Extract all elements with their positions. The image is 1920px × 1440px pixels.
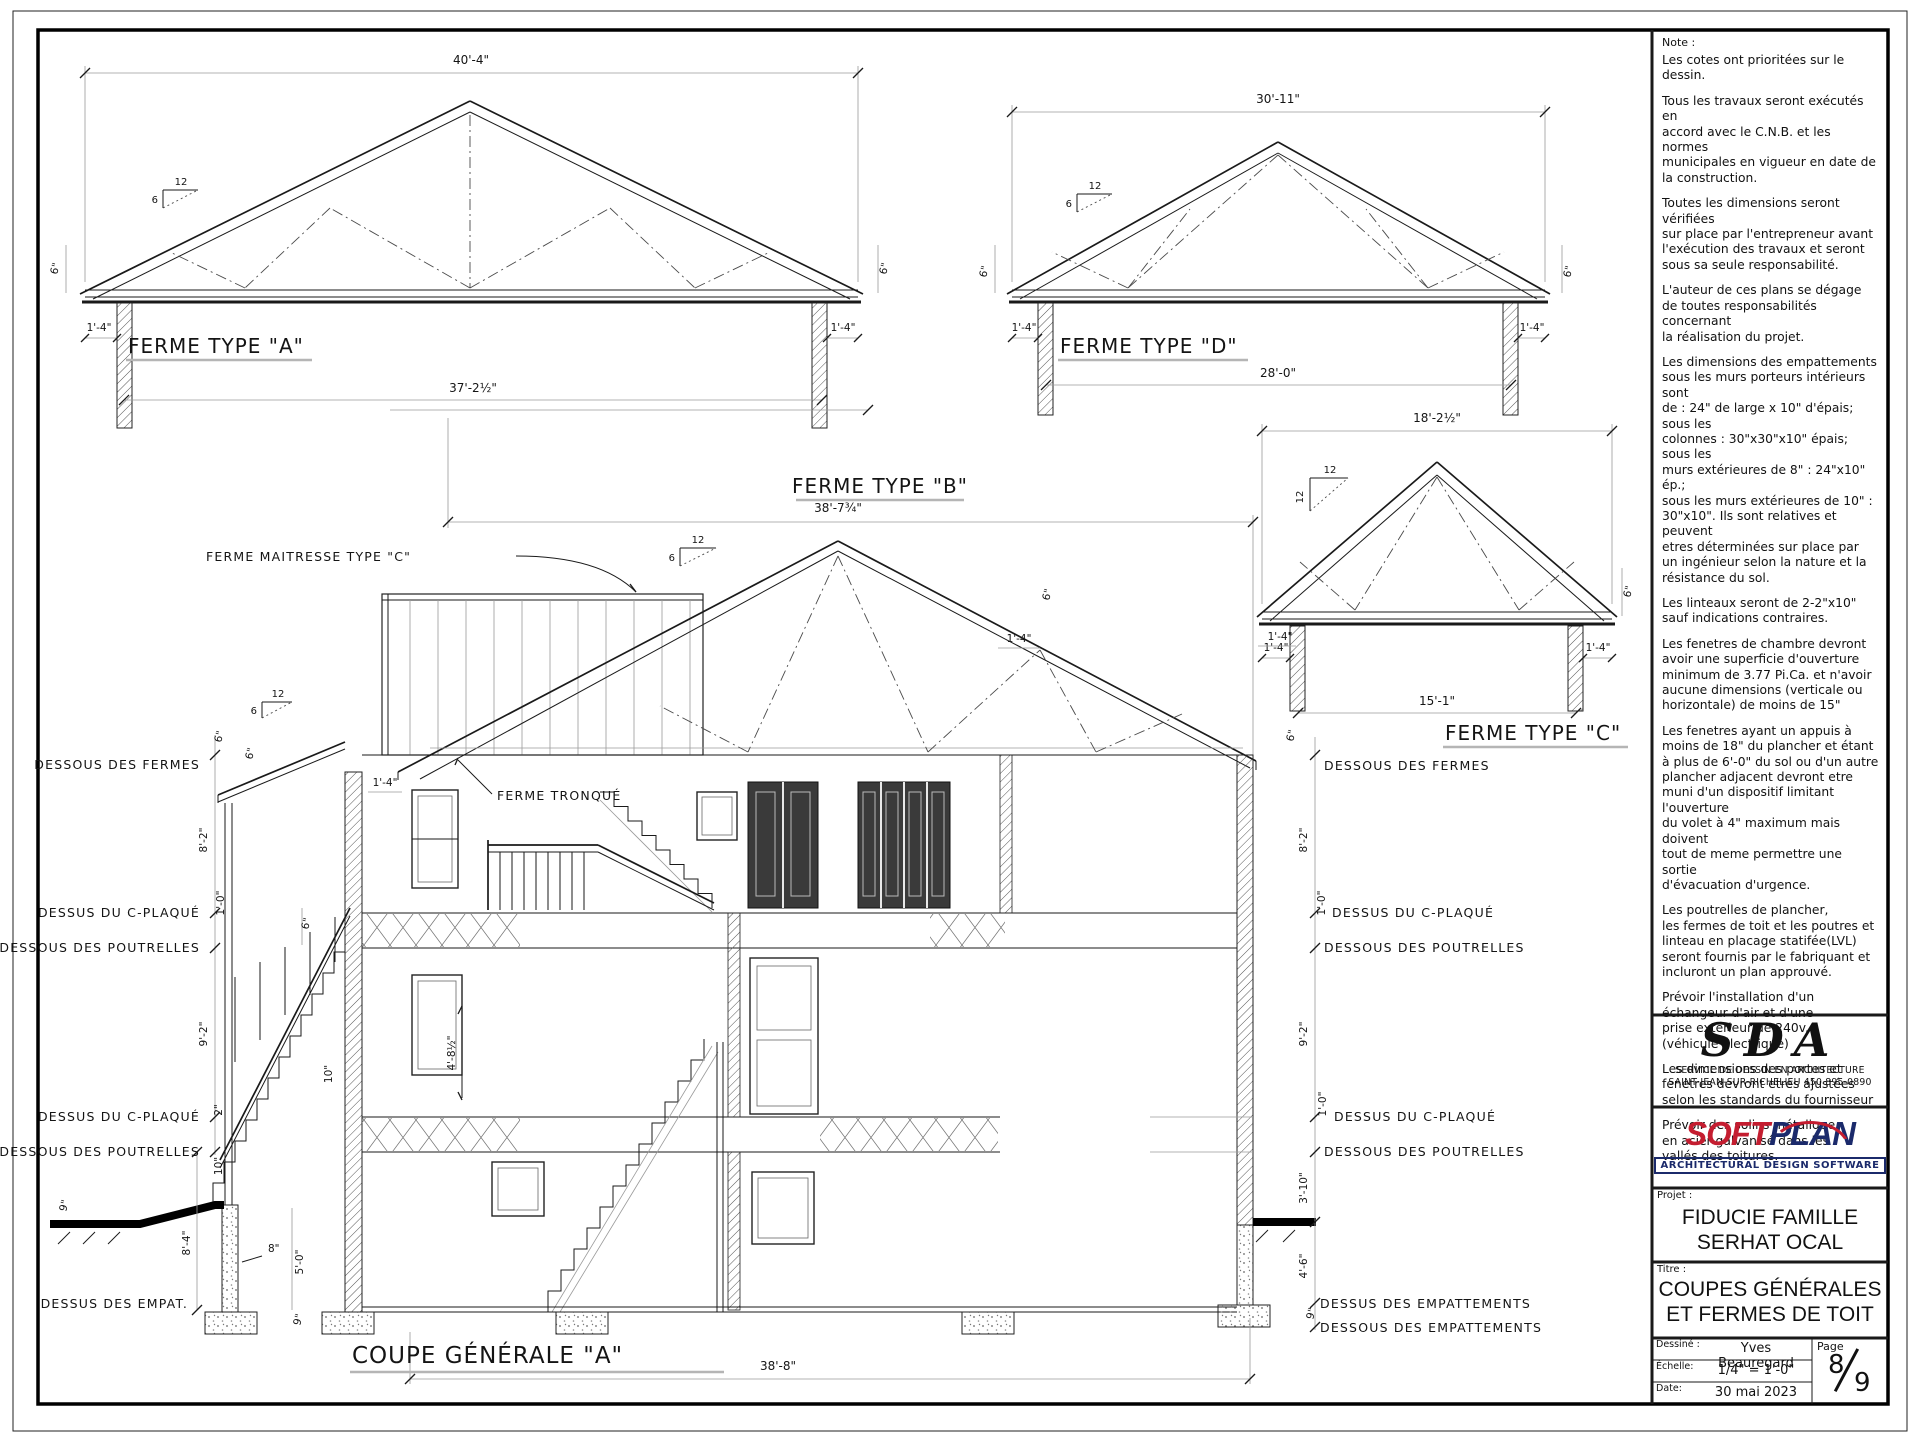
dim-porch-wall: 8" [268, 1243, 280, 1255]
project-line1: FIDUCIE FAMILLE [1652, 1205, 1888, 1230]
porch: 12 6 [213, 689, 350, 1312]
scale-label: Échelle: [1656, 1361, 1693, 1372]
right-panel: Note : Les cotes ont prioritées sur le d… [1652, 30, 1888, 1404]
dim-right-grade: 3'-10" [1298, 1172, 1310, 1204]
dim-left-floor2-top: 2" [213, 1104, 225, 1116]
note-paragraph: Les linteaux seront de 2-2"x10" sauf ind… [1662, 596, 1880, 627]
note-paragraph: Tous les travaux seront exécutés en acco… [1662, 94, 1880, 186]
dim-left-overhang: 1'-4" [373, 777, 398, 789]
label-right-fermes: DESSOUS DES FERMES [1324, 758, 1490, 773]
dim-left-floor2-depth: 10" [213, 1157, 225, 1175]
truss-a-label: FERME TYPE "A" [128, 334, 304, 358]
truss-a-overhang-right: 1'-4" [831, 322, 856, 334]
truss-c: 18'-2½" 6" 1'-4" 1'-4" 15'-1" 12 12 FERM… [1257, 411, 1636, 747]
project-label: Projet : [1657, 1190, 1692, 1201]
dim-right-storey1: 9'-2" [1298, 1022, 1310, 1047]
notes-heading: Note : [1662, 36, 1880, 49]
label-left-poutrelles1: DESSOUS DES POUTRELLES [0, 940, 200, 955]
stair-basement [548, 1039, 723, 1312]
truss-a-top-dim: 40'-4" [453, 53, 489, 67]
note-paragraph: Les poutrelles de plancher, les fermes d… [1662, 903, 1880, 980]
dim-right-floor1: 1'-0" [1316, 891, 1328, 916]
dim-left-floor1: 1'-0" [215, 891, 227, 916]
dim-right-storey2: 8'-2" [1298, 828, 1310, 853]
note-paragraph: Les cotes ont prioritées sur le dessin. [1662, 53, 1880, 84]
dim-left-foundation: 8'-4" [181, 1231, 193, 1256]
dim-right-floor2: 1'-0" [1317, 1092, 1329, 1117]
truss-c-heel-right: 6" [1621, 585, 1636, 599]
truss-a-heel-left: 6" [48, 262, 63, 276]
truss-a-heel-right: 6" [877, 262, 892, 276]
date-label: Date: [1656, 1383, 1682, 1394]
truss-b-label: FERME TYPE "B" [792, 474, 968, 498]
label-right-cplaque2: DESSUS DU C-PLAQUÉ [1334, 1109, 1496, 1124]
note-paragraph: Toutes les dimensions seront vérifiées s… [1662, 196, 1880, 273]
truss-c-label: FERME TYPE "C" [1445, 721, 1621, 745]
section-title: COUPE GÉNÉRALE "A" [352, 1341, 623, 1369]
dim-left-storey2: 8'-2" [198, 828, 210, 853]
porch-pitch-run: 12 [272, 689, 285, 700]
truss-d-overhang-left: 1'-4" [1012, 322, 1037, 334]
title-block: Titre : COUPES GÉNÉRALES ET FERMES DE TO… [1652, 1262, 1888, 1338]
label-right-dessus-empat: DESSUS DES EMPATTEMENTS [1320, 1296, 1531, 1311]
dim-right-foundation: 4'-6" [1298, 1254, 1310, 1279]
window-storey2-mid [697, 792, 737, 840]
drawing-canvas: 40'-4" 6" 6" 1'-4" 1'-4" 37'-2½" 12 6 FE… [0, 0, 1920, 1440]
title-line2: ET FERMES DE TOIT [1652, 1302, 1888, 1327]
label-left-empat: DESSUS DES EMPAT. [41, 1296, 188, 1311]
label-right-cplaque1: DESSUS DU C-PLAQUÉ [1332, 905, 1494, 920]
drawing-sheet: 40'-4" 6" 6" 1'-4" 1'-4" 37'-2½" 12 6 FE… [0, 0, 1920, 1440]
dim-stair: 4'-8½" [446, 1035, 458, 1070]
truss-b-pitch-rise: 6 [669, 553, 675, 564]
callout-ferme-tronque: FERME TRONQUÉ [497, 788, 621, 803]
truss-c-pitch-rise: 12 [1295, 491, 1306, 504]
sheet-border [13, 11, 1907, 1431]
sda-logo: SDA [1652, 1015, 1888, 1065]
date-value: 30 mai 2023 [1702, 1385, 1810, 1400]
window-basement-right [752, 1172, 814, 1244]
label-left-poutrelles2: DESSOUS DES POUTRELLES [0, 1144, 200, 1159]
truss-c-overhang-right: 1'-4" [1586, 642, 1611, 654]
note-paragraph: L'auteur de ces plans se dégage de toute… [1662, 283, 1880, 345]
callout-ferme-maitresse: FERME MAITRESSE TYPE "C" [206, 549, 411, 564]
truss-b-heel: 6" [1040, 588, 1055, 602]
label-right-poutrelles1: DESSOUS DES POUTRELLES [1324, 940, 1525, 955]
window-basement-left [492, 1162, 544, 1216]
door-paneled-single [748, 782, 818, 908]
dim-footing-left: 9" [291, 1313, 306, 1327]
note-paragraph: Les fenetres de chambre devront avoir un… [1662, 637, 1880, 714]
softplan-block: SOFTPLAN ARCHITECTURAL DESIGN SOFTWARE [1652, 1107, 1888, 1188]
truss-d-heel-right: 6" [1561, 265, 1576, 279]
stair-upper [488, 792, 714, 912]
date-row: Date: 30 mai 2023 [1652, 1382, 1812, 1404]
dim-left-grade: 9" [57, 1199, 72, 1213]
truss-a-pitch-rise: 6 [152, 195, 158, 206]
truss-a: 40'-4" 6" 6" 1'-4" 1'-4" 37'-2½" 12 6 FE… [48, 53, 892, 428]
dim-bsmt-wall: 10" [323, 1065, 335, 1083]
dim-porch-heel2: 6" [299, 917, 314, 931]
section-bottom-dim: 38'-8" [760, 1359, 796, 1373]
door-paneled-double [858, 782, 950, 908]
softplan-logo-soft: SOFT [1685, 1115, 1769, 1152]
scale-row: Échelle: 1/4" = 1'-0" [1652, 1360, 1812, 1382]
dim-porch-found: 5'-0" [294, 1250, 306, 1275]
dim-left-storey1: 9'-2" [198, 1022, 210, 1047]
drawn-row: Dessiné : Yves Beauregard [1652, 1338, 1812, 1360]
truss-b-overhang: 1'-4" [1007, 633, 1032, 645]
title-label: Titre : [1657, 1264, 1686, 1275]
project-line2: SERHAT OCAL [1652, 1230, 1888, 1255]
window-storey2-left [412, 790, 458, 888]
door-storey1-right [750, 958, 818, 1114]
truss-d-pitch-rise: 6 [1066, 199, 1072, 210]
label-right-dessous-empat: DESSOUS DES EMPATTEMENTS [1320, 1320, 1542, 1335]
truss-a-bottom-dim: 37'-2½" [449, 381, 497, 395]
page-denominator: 9 [1854, 1368, 1871, 1398]
truss-d: 30'-11" 6" 6" 1'-4" 1'-4" 28'-0" 12 6 FE… [977, 92, 1576, 415]
softplan-tagline: ARCHITECTURAL DESIGN SOFTWARE [1654, 1157, 1887, 1174]
label-left-cplaque2: DESSUS DU C-PLAQUÉ [38, 1109, 200, 1124]
porch-pitch-rise: 6 [251, 706, 257, 717]
truss-a-pitch-run: 12 [175, 177, 188, 188]
page-cell: Page 8 9 [1812, 1338, 1888, 1404]
label-left-fermes: DESSOUS DES FERMES [34, 757, 200, 772]
truss-c-pitch-run: 12 [1324, 465, 1337, 476]
dim-left-heel: 6" [212, 730, 227, 744]
sda-block: SDA SERVICE DE DESSIN EN ARCHITECTURE SA… [1652, 1015, 1888, 1107]
dim-right-footing: 9" [1304, 1307, 1319, 1321]
scale-value: 1/4" = 1'-0" [1702, 1363, 1810, 1378]
truss-c-bottom-dim: 15'-1" [1419, 694, 1455, 708]
dim-porch-heel: 6" [243, 747, 258, 761]
truss-d-bottom-dim: 28'-0" [1260, 366, 1296, 380]
drawn-label: Dessiné : [1656, 1339, 1700, 1350]
note-paragraph: Les dimensions des empattements sous les… [1662, 355, 1880, 586]
label-left-cplaque1: DESSUS DU C-PLAQUÉ [38, 905, 200, 920]
sda-line2: SAINT-JEAN-SUR-RICHELIEU 450 895-0890 [1652, 1077, 1888, 1089]
truss-d-pitch-run: 12 [1089, 181, 1102, 192]
project-block: Projet : FIDUCIE FAMILLE SERHAT OCAL [1652, 1188, 1888, 1262]
truss-c-top-dim: 18'-2½" [1413, 411, 1461, 425]
truss-b-top-dim: 38'-7¾" [814, 501, 862, 515]
dim-right-heel: 6" [1284, 729, 1299, 743]
truss-d-top-dim: 30'-11" [1256, 92, 1300, 106]
section-body: 12 6 [50, 689, 1316, 1334]
notes-panel: Note : Les cotes ont prioritées sur le d… [1662, 36, 1880, 1174]
truss-d-overhang-right: 1'-4" [1520, 322, 1545, 334]
truss-a-overhang-left: 1'-4" [87, 322, 112, 334]
truss-c-overhang-left: 1'-4" [1264, 642, 1289, 654]
title-line1: COUPES GÉNÉRALES [1652, 1277, 1888, 1302]
sda-line1: SERVICE DE DESSIN EN ARCHITECTURE [1652, 1065, 1888, 1077]
dim-right-overhang: 1'-4" [1268, 631, 1293, 643]
truss-d-heel-left: 6" [977, 265, 992, 279]
truss-d-label: FERME TYPE "D" [1060, 334, 1238, 358]
truss-b-pitch-run: 12 [692, 535, 705, 546]
label-right-poutrelles2: DESSOUS DES POUTRELLES [1324, 1144, 1525, 1159]
truss-b-roof: 38'-7¾" FERME TYPE "B" 12 6 FERME MAITRE… [206, 405, 1258, 803]
note-paragraph: Les fenetres ayant un appuis à moins de … [1662, 724, 1880, 893]
